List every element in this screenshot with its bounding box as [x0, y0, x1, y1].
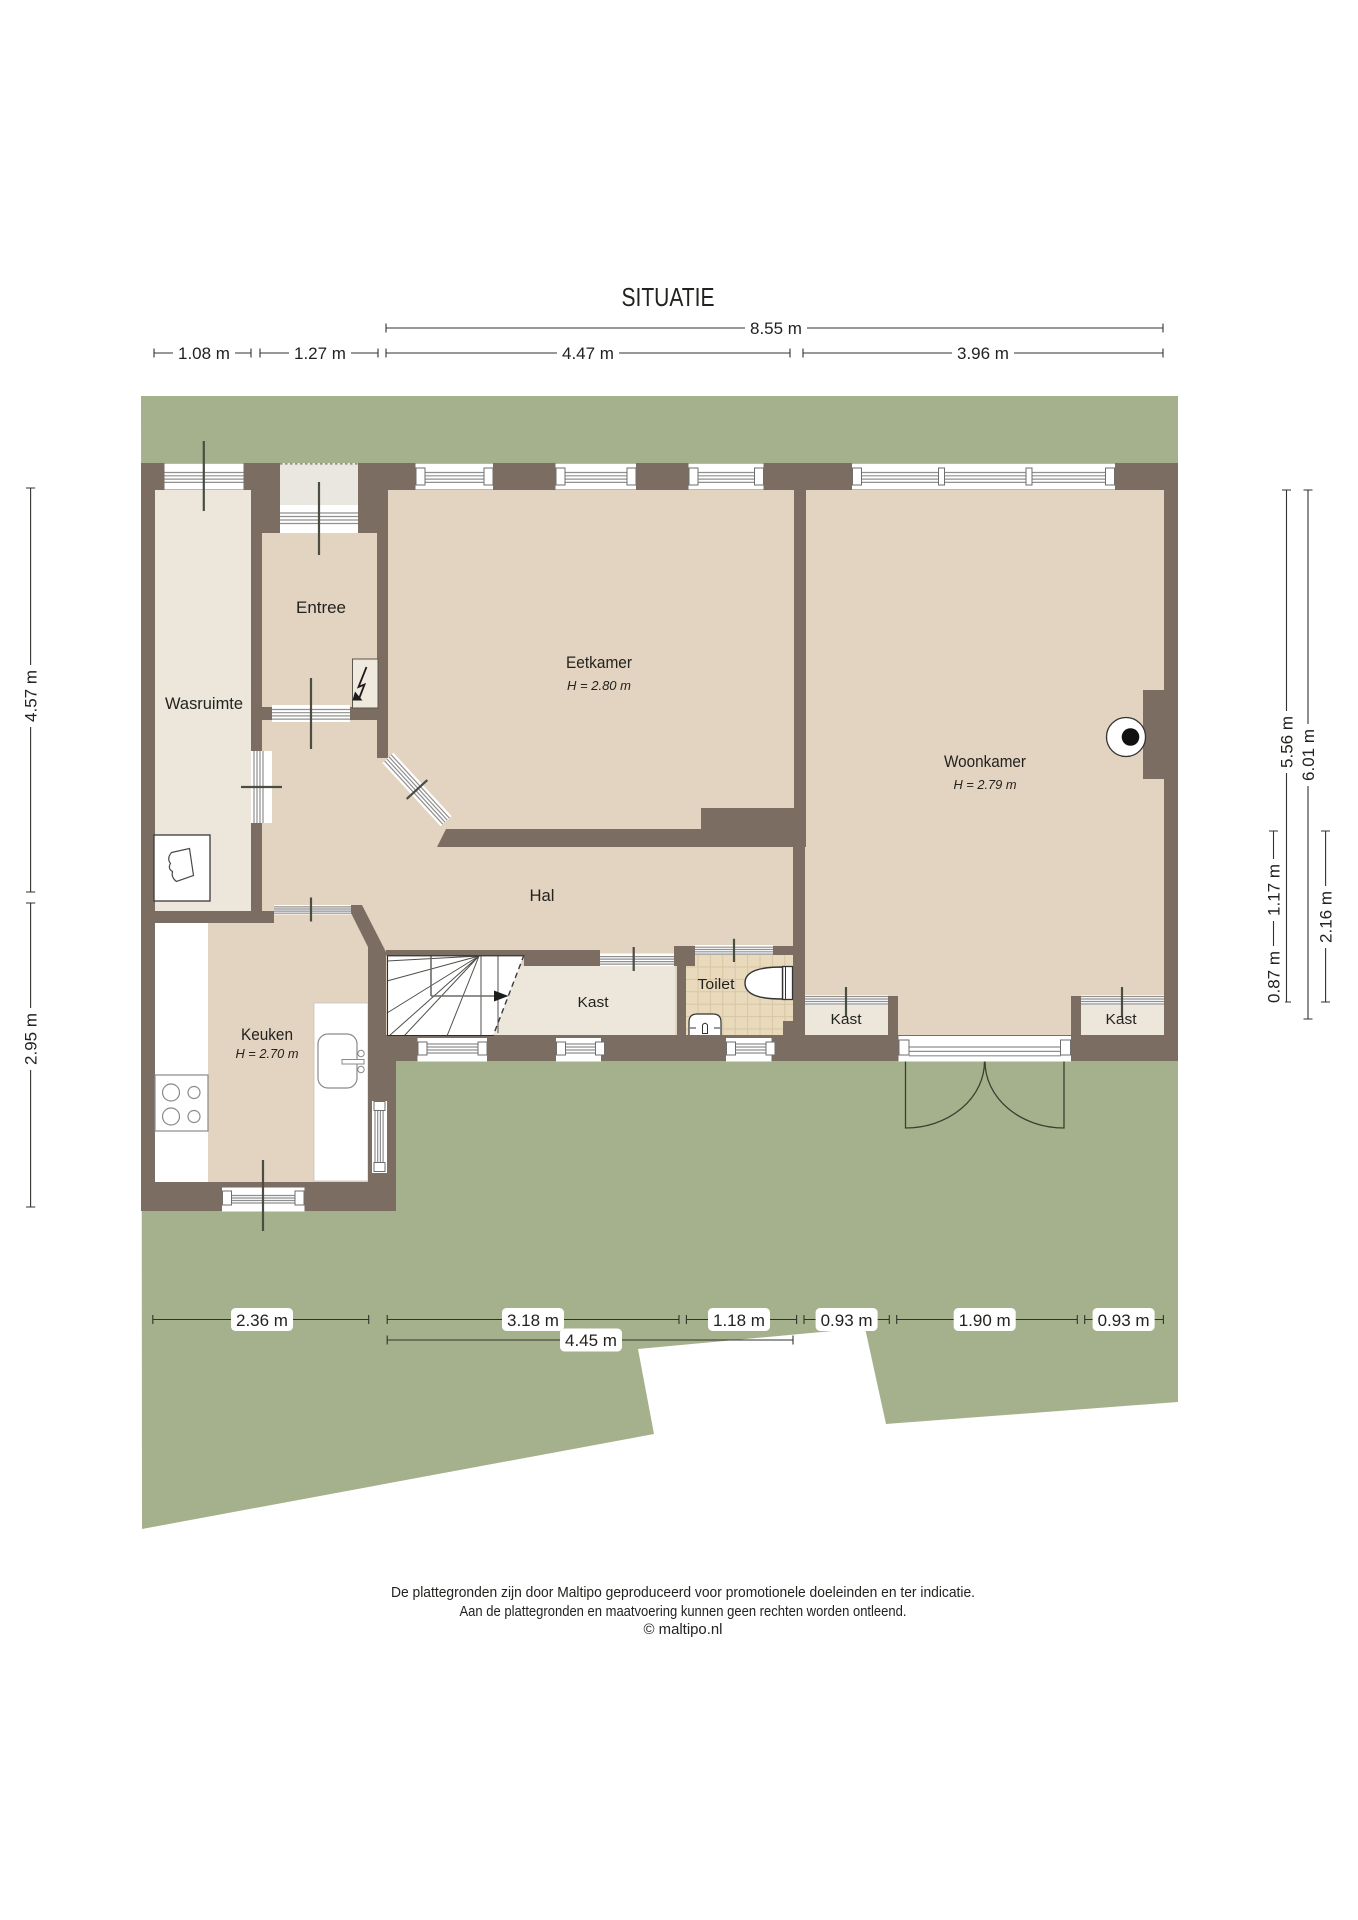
svg-text:0.93 m: 0.93 m	[1098, 1311, 1150, 1330]
svg-text:H = 2.79 m: H = 2.79 m	[954, 777, 1017, 792]
svg-text:5.56 m: 5.56 m	[1278, 716, 1297, 768]
svg-text:SITUATIE: SITUATIE	[622, 282, 715, 312]
svg-text:0.93 m: 0.93 m	[821, 1311, 873, 1330]
svg-text:© maltipo.nl: © maltipo.nl	[644, 1622, 723, 1638]
svg-text:Wasruimte: Wasruimte	[165, 694, 243, 713]
svg-text:Entree: Entree	[296, 598, 346, 617]
svg-text:1.27 m: 1.27 m	[294, 344, 346, 363]
svg-text:Keuken: Keuken	[241, 1025, 293, 1044]
svg-text:H = 2.70 m: H = 2.70 m	[236, 1046, 299, 1061]
svg-text:Eetkamer: Eetkamer	[566, 653, 632, 672]
svg-text:Kast: Kast	[831, 1011, 863, 1028]
svg-text:Kast: Kast	[578, 994, 610, 1011]
svg-text:Woonkamer: Woonkamer	[944, 752, 1026, 771]
svg-text:2.95 m: 2.95 m	[22, 1013, 41, 1065]
svg-text:Kast: Kast	[1106, 1011, 1138, 1028]
svg-text:4.47 m: 4.47 m	[562, 344, 614, 363]
svg-text:8.55 m: 8.55 m	[750, 319, 802, 338]
svg-text:3.96 m: 3.96 m	[957, 344, 1009, 363]
svg-text:H = 2.80 m: H = 2.80 m	[567, 678, 631, 693]
svg-text:1.08 m: 1.08 m	[178, 344, 230, 363]
svg-text:1.18 m: 1.18 m	[713, 1311, 765, 1330]
svg-text:2.16 m: 2.16 m	[1317, 891, 1336, 943]
svg-text:Aan de plattegronden en maatvo: Aan de plattegronden en maatvoering kunn…	[460, 1604, 907, 1620]
svg-text:De plattegronden zijn door Mal: De plattegronden zijn door Maltipo gepro…	[391, 1585, 975, 1601]
svg-text:4.57 m: 4.57 m	[22, 670, 41, 722]
svg-text:3.18 m: 3.18 m	[507, 1311, 559, 1330]
svg-text:1.17 m: 1.17 m	[1265, 864, 1284, 916]
svg-text:0.87 m: 0.87 m	[1265, 951, 1284, 1003]
svg-text:1.90 m: 1.90 m	[959, 1311, 1011, 1330]
svg-text:4.45 m: 4.45 m	[565, 1331, 617, 1350]
svg-text:Toilet: Toilet	[698, 976, 736, 993]
svg-text:Hal: Hal	[530, 886, 555, 905]
svg-text:2.36 m: 2.36 m	[236, 1311, 288, 1330]
svg-text:6.01 m: 6.01 m	[1299, 729, 1318, 781]
